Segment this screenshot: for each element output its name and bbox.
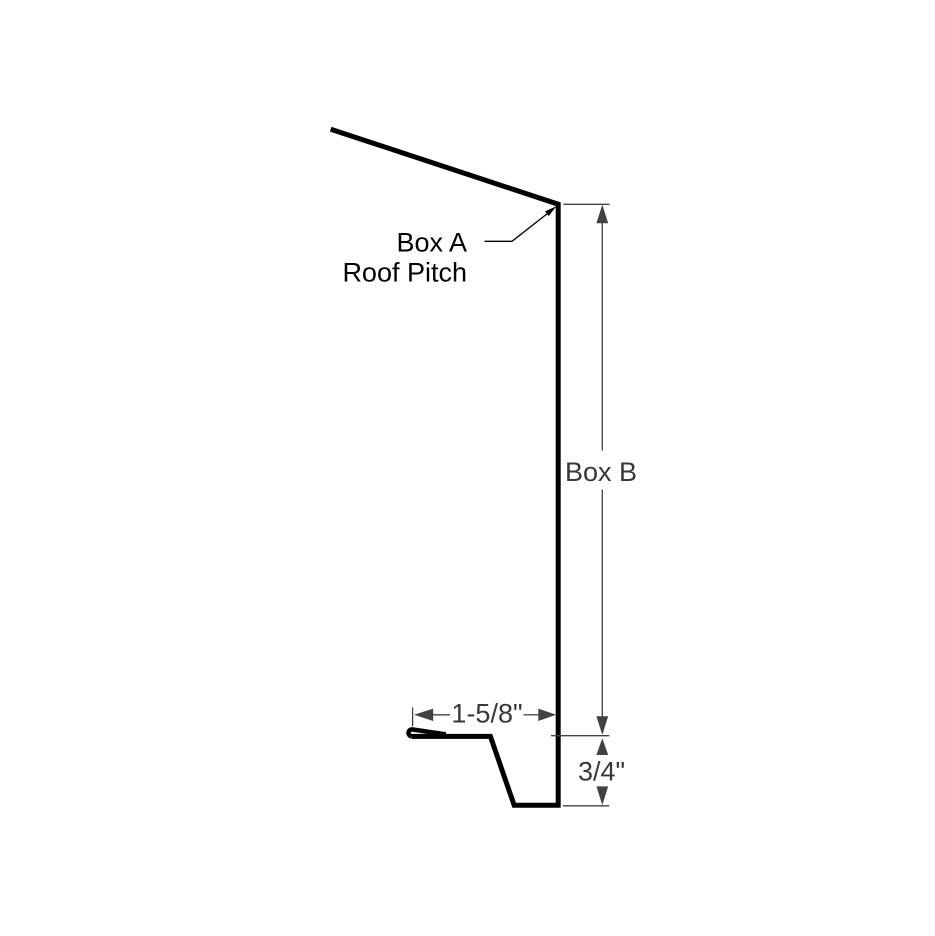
svg-text:1-5/8": 1-5/8" — [451, 699, 522, 729]
svg-text:Box A: Box A — [396, 228, 467, 258]
svg-text:Box B: Box B — [565, 457, 637, 487]
svg-text:3/4": 3/4" — [578, 756, 625, 786]
svg-text:Roof Pitch: Roof Pitch — [342, 258, 467, 288]
